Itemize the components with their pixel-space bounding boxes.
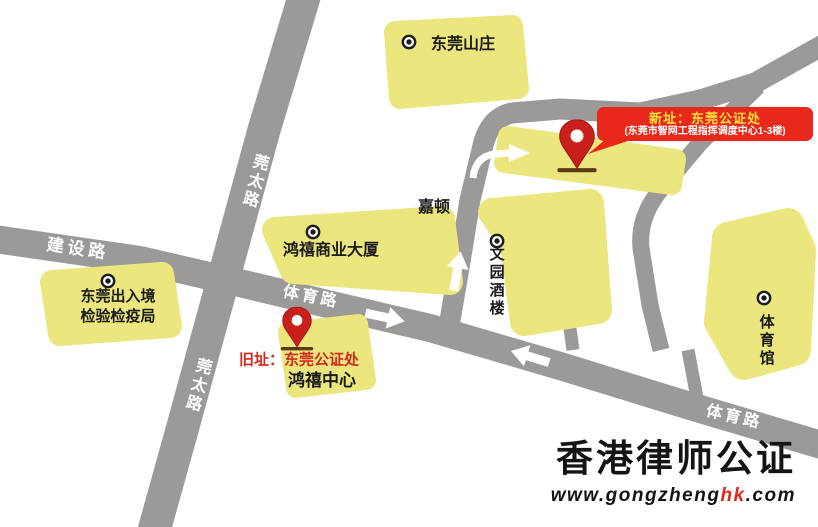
brand-logo: 香港律师公证 www.gongzhenghk.com <box>551 440 796 507</box>
jiadun-label: 嘉顿 <box>418 199 450 217</box>
road-connector-stadium <box>688 350 697 398</box>
brand-url-highlight: hk <box>720 485 745 506</box>
brand-url-suffix: .com <box>746 485 796 506</box>
poi-bullseye-icon <box>758 292 770 304</box>
inspection-bureau-label: 东莞出入境 检验检疫局 <box>80 287 155 327</box>
inspection-bureau-label-line1: 东莞出入境 <box>80 287 155 307</box>
stadium-label: 体育馆 <box>757 314 774 368</box>
brand-url-prefix: www.gongzheng <box>551 485 721 506</box>
new-site-callout-title: 新址：东莞公证处 <box>649 111 761 126</box>
new-site-callout-subtitle: (东莞市智网工程指挥调度中心1-3楼) <box>624 126 785 138</box>
poi-bullseye-icon <box>307 226 319 238</box>
brand-logo-url: www.gongzhenghk.com <box>551 485 796 507</box>
new-site-callout: 新址：东莞公证处 (东莞市智网工程指挥调度中心1-3楼) <box>597 107 813 141</box>
poi-bullseye-icon <box>102 275 114 287</box>
building-wenyuan <box>492 203 598 322</box>
old-site-label: 旧址：东莞公证处 <box>239 351 359 368</box>
brand-logo-title: 香港律师公证 <box>551 440 796 480</box>
map-canvas: 东莞山庄 嘉顿 鸿禧商业大厦 东莞出入境 检验检疫局 鸿禧中心 文园酒楼 体育馆… <box>0 0 818 527</box>
hongxi-center-label: 鸿禧中心 <box>288 371 356 391</box>
poi-bullseye-icon <box>403 36 415 48</box>
wenyuan-restaurant-label: 文园酒楼 <box>487 246 504 318</box>
dongguan-villa-label: 东莞山庄 <box>431 36 495 54</box>
hongxi-commercial-label: 鸿禧商业大厦 <box>283 242 379 260</box>
inspection-bureau-label-line2: 检验检疫局 <box>80 307 155 327</box>
